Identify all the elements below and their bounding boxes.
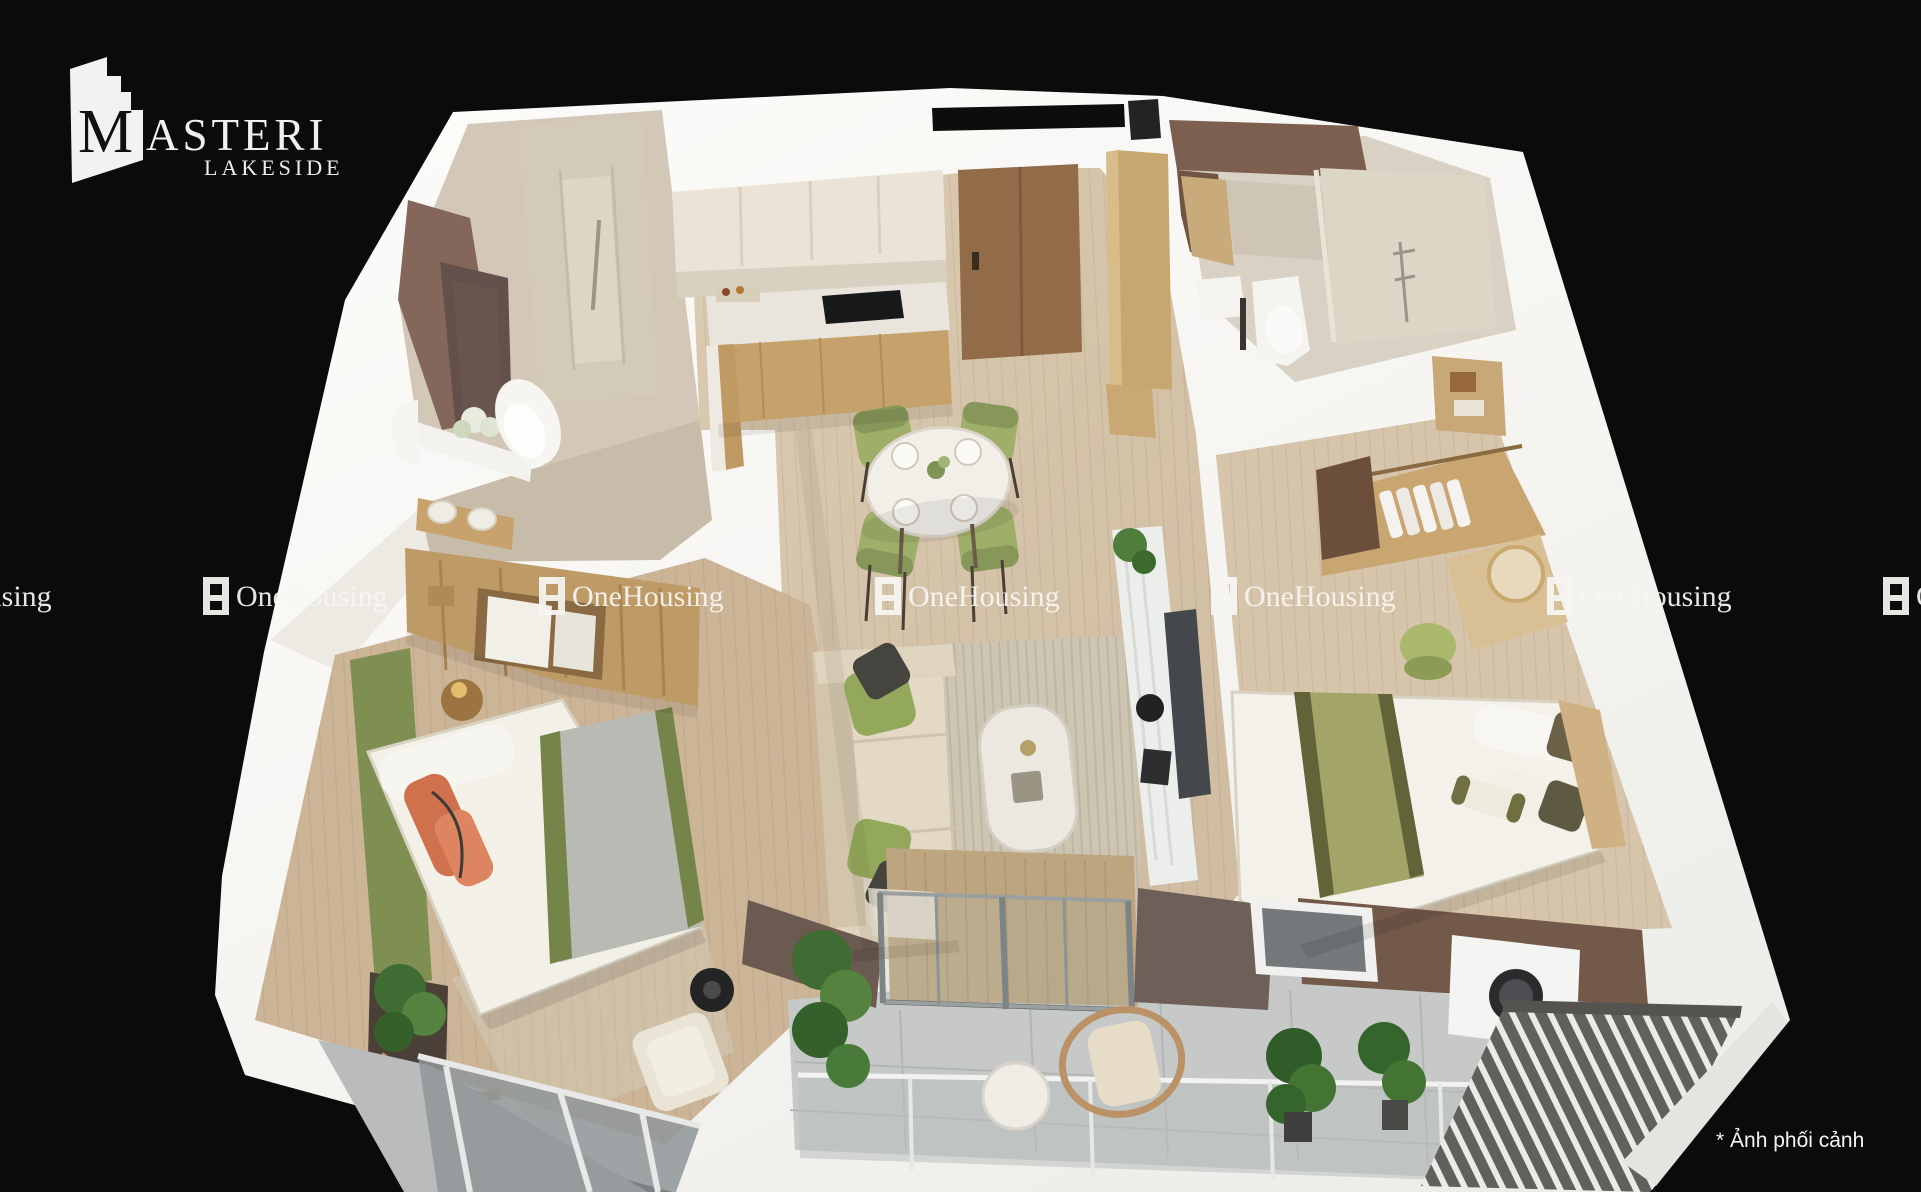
svg-text:OneHousing: OneHousing (572, 580, 724, 613)
svg-text:OneHousing: OneHousing (1580, 580, 1732, 613)
svg-text:LAKESIDE: LAKESIDE (204, 155, 344, 180)
svg-text:OneHousing: OneHousing (0, 580, 52, 613)
svg-text:M: M (78, 98, 133, 166)
svg-text:OneHousing: OneHousing (1244, 580, 1396, 613)
svg-text:* Ảnh phối cảnh: * Ảnh phối cảnh (1716, 1129, 1864, 1152)
svg-text:OneHousing: OneHousing (1916, 580, 1921, 613)
svg-text:ASTERI: ASTERI (146, 110, 328, 160)
svg-text:OneHousing: OneHousing (236, 580, 388, 613)
svg-text:OneHousing: OneHousing (908, 580, 1060, 613)
